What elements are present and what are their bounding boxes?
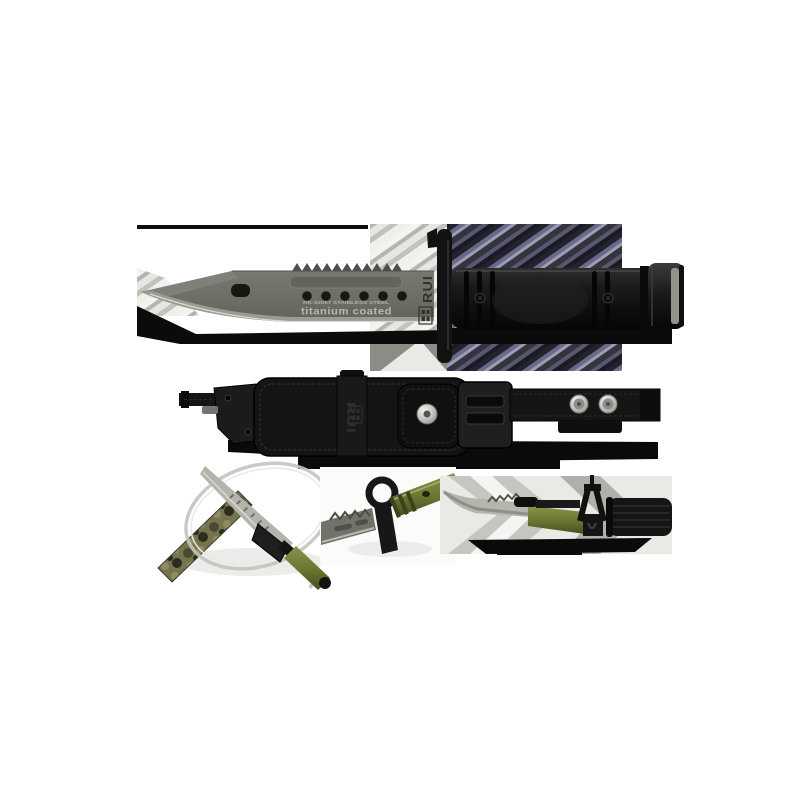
pommel bbox=[640, 263, 684, 329]
handguard bbox=[606, 497, 672, 537]
blade-fuller-groove bbox=[290, 276, 402, 288]
detail-handle-cap bbox=[319, 577, 331, 589]
handle-button bbox=[422, 491, 430, 497]
blade-marking-large-text: titanium coated bbox=[301, 307, 392, 318]
sheath-brand-text: RUI bbox=[344, 402, 358, 434]
strap-snap-left bbox=[570, 395, 588, 413]
handle-screw-rear bbox=[603, 293, 613, 303]
delta-ring bbox=[606, 497, 613, 537]
handle bbox=[451, 268, 649, 329]
wire-cutter-pin bbox=[202, 406, 218, 414]
flash-hider bbox=[514, 497, 538, 507]
blade-oval-cutout bbox=[231, 284, 250, 297]
product-image: RK-32067 STAINLESS STEEL titanium coated… bbox=[0, 0, 800, 800]
knife-main-photo: RK-32067 STAINLESS STEEL titanium coated… bbox=[137, 224, 684, 371]
rifle-mount-detail-photo bbox=[440, 475, 672, 555]
handle-screw-front bbox=[475, 293, 485, 303]
sheath-throat-piece bbox=[458, 382, 512, 448]
barrel bbox=[536, 500, 580, 508]
sheath-snap-flap bbox=[398, 384, 460, 448]
blade-marking-small-text: RK-32067 STAINLESS STEEL bbox=[303, 300, 389, 305]
product-collage: RK-32067 STAINLESS STEEL titanium coated… bbox=[0, 0, 800, 800]
sheath-leg-strap bbox=[510, 389, 660, 433]
sheath-photo: RUI bbox=[179, 370, 660, 469]
strap-snap-right bbox=[599, 395, 617, 413]
blade-brand-text: RUI bbox=[420, 275, 435, 303]
